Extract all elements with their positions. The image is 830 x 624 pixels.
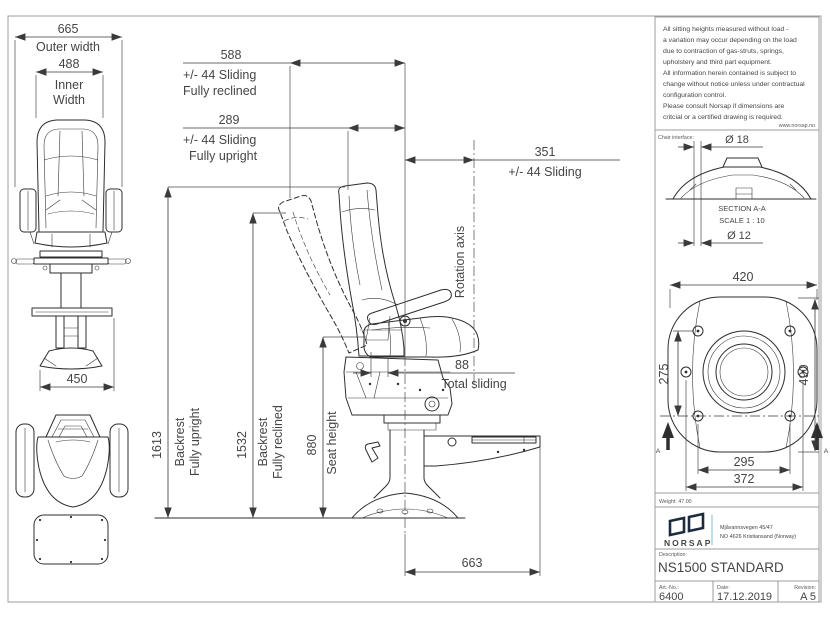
dim-label: Seat height xyxy=(325,411,339,475)
dim-label: Total sliding xyxy=(441,377,506,391)
dim-value: 275 xyxy=(657,364,671,385)
notes-line: Please consult Norsap if dimensions are xyxy=(663,103,784,110)
dim-label: Fully upright xyxy=(189,149,258,163)
notes-line: configuration control. xyxy=(663,92,726,99)
dim-value: 1613 xyxy=(150,431,164,459)
dim-value: 450 xyxy=(67,372,88,386)
section-title: SECTION A-A xyxy=(718,204,766,213)
dim-label: +/- 44 Sliding xyxy=(183,68,256,82)
dim-value: 289 xyxy=(219,113,240,127)
dim-value: 490 xyxy=(797,365,811,386)
dim-value: 588 xyxy=(221,48,242,62)
art-no-value: 6400 xyxy=(659,591,683,603)
dim-label: Outer width xyxy=(36,40,100,54)
notes-line: All information herein contained is subj… xyxy=(663,70,796,77)
dim-420: 420 xyxy=(670,270,817,308)
notes-line: critcial or a certified drawing is requi… xyxy=(663,114,783,121)
notes-box: All sitting heights measured without loa… xyxy=(663,26,815,129)
section-arrow-right: A xyxy=(811,422,829,455)
dim-295: 295 xyxy=(698,424,790,474)
date-value: 17.12.2019 xyxy=(717,591,772,603)
website-text: www.norsap.no xyxy=(779,123,815,129)
title-block: Weight: 47.00 NORSAP Mjåvannsvegen 45/47… xyxy=(655,493,819,603)
section-a-a-view: Chair interface: Ø 18 SECTION A-A SCALE … xyxy=(658,134,816,246)
drawing-sheet: 665 Outer width 488 Inner Width 450 xyxy=(0,0,830,624)
base-top-view: A A 420 275 490 295 xyxy=(656,270,829,491)
dim-289-upright: 289 +/- 44 Sliding Fully upright xyxy=(183,113,405,190)
section-arrow-left: A xyxy=(656,422,674,455)
section-scale: SCALE 1 : 10 xyxy=(719,216,764,225)
address-line: Mjåvannsvegen 45/47 xyxy=(720,524,773,531)
axis-label: Rotation axis xyxy=(453,226,467,298)
dim-value: 880 xyxy=(305,435,319,456)
dim-label: Backrest xyxy=(256,417,270,466)
dim-label: Fully upright xyxy=(188,407,202,476)
dim-value: 1532 xyxy=(235,431,249,459)
dim-588-reclined: 588 +/- 44 Sliding Fully reclined xyxy=(183,48,405,198)
dim-label: Inner xyxy=(55,78,84,92)
dim-label: +/- 44 Sliding xyxy=(183,133,256,147)
address-line: NO 4626 Kristiansand (Norway) xyxy=(720,534,796,540)
bolt-holes xyxy=(681,326,808,421)
dim-value: 665 xyxy=(58,22,79,36)
description-label: Description: xyxy=(659,552,687,558)
notes-line: All sitting heights measured without loa… xyxy=(663,26,788,33)
dim-dia-18: Ø 18 xyxy=(725,134,749,146)
dim-value: 488 xyxy=(59,57,80,71)
dim-value: 420 xyxy=(733,270,754,284)
dim-value: 351 xyxy=(535,145,556,159)
dim-value: 372 xyxy=(734,472,755,486)
rotation-axis-label: Rotation axis xyxy=(453,226,467,298)
norsap-logo-icon xyxy=(670,514,703,535)
dim-372: 372 xyxy=(686,380,803,491)
dim-value: 88 xyxy=(455,358,469,372)
notes-line: change without notice unless under contr… xyxy=(663,81,805,88)
dim-label: Width xyxy=(53,93,85,107)
dim-label: Fully reclined xyxy=(271,405,285,479)
notes-line: upholstery and third part equipment. xyxy=(663,59,772,66)
dim-dia-12: Ø 12 xyxy=(727,230,751,242)
dim-1613-backrest-upright: 1613 Backrest Fully upright xyxy=(150,187,345,518)
dim-351-sliding: 351 +/- 44 Sliding xyxy=(405,145,620,179)
revision-value: A 5 xyxy=(800,591,816,603)
dim-base-width: 450 xyxy=(40,318,114,391)
dim-value: 663 xyxy=(462,556,483,570)
dim-label: Fully reclined xyxy=(183,84,257,98)
dim-1532-backrest-reclined: 1532 Backrest Fully reclined xyxy=(235,213,286,518)
brand-name: NORSAP xyxy=(664,538,712,548)
description-value: NS1500 STANDARD xyxy=(658,560,784,575)
weight-text: Weight: 47.00 xyxy=(659,499,692,505)
chair-interface-label: Chair interface: xyxy=(658,135,694,141)
dim-275: 275 xyxy=(657,331,694,416)
section-marker: A xyxy=(824,448,829,455)
technical-drawing: 665 Outer width 488 Inner Width 450 xyxy=(0,0,830,624)
dim-inner-width: 488 Inner Width xyxy=(36,57,103,118)
notes-line: a variation may occur depending on the l… xyxy=(663,37,797,44)
dim-label: Backrest xyxy=(173,417,187,466)
notes-line: due to contraction of gas-struts, spring… xyxy=(663,48,784,55)
dim-value: 295 xyxy=(734,455,755,469)
dim-label: +/- 44 Sliding xyxy=(508,165,581,179)
front-view-chair xyxy=(12,120,131,369)
top-view-chair xyxy=(16,415,128,564)
section-marker: A xyxy=(656,448,661,455)
